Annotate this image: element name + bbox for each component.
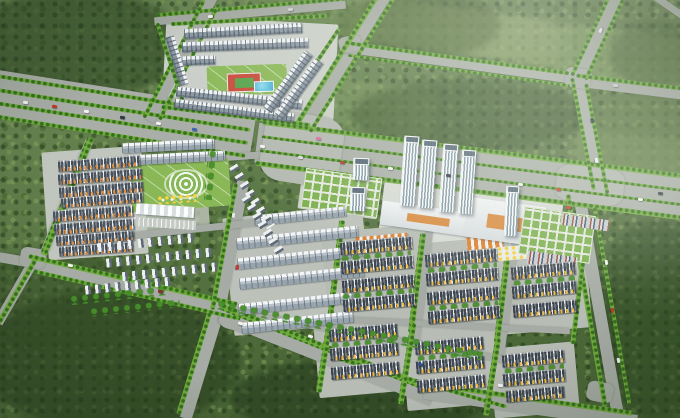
car	[637, 197, 642, 200]
car	[594, 157, 598, 162]
car	[612, 83, 617, 86]
car	[297, 155, 302, 158]
car	[610, 307, 614, 312]
car	[83, 109, 88, 113]
car	[191, 127, 196, 131]
car	[259, 144, 264, 148]
car	[307, 334, 313, 338]
car	[315, 136, 320, 140]
car	[237, 321, 243, 325]
car	[207, 14, 212, 17]
car	[119, 115, 124, 119]
car	[565, 205, 570, 208]
car	[157, 289, 163, 293]
car	[287, 7, 292, 10]
car	[590, 117, 594, 122]
car	[231, 212, 235, 217]
car	[387, 166, 392, 169]
aerial-masterplan-render	[0, 0, 680, 418]
car	[417, 362, 422, 366]
car	[339, 160, 344, 163]
car	[657, 191, 662, 194]
car	[616, 357, 620, 362]
car	[51, 104, 56, 108]
car	[445, 173, 450, 176]
car	[598, 27, 603, 33]
car	[604, 259, 608, 264]
layer-cars	[0, 0, 680, 418]
car	[235, 264, 239, 269]
car	[155, 121, 160, 125]
car	[497, 383, 502, 387]
car	[555, 187, 560, 190]
car	[67, 263, 72, 267]
car	[22, 100, 27, 104]
car	[517, 182, 522, 185]
